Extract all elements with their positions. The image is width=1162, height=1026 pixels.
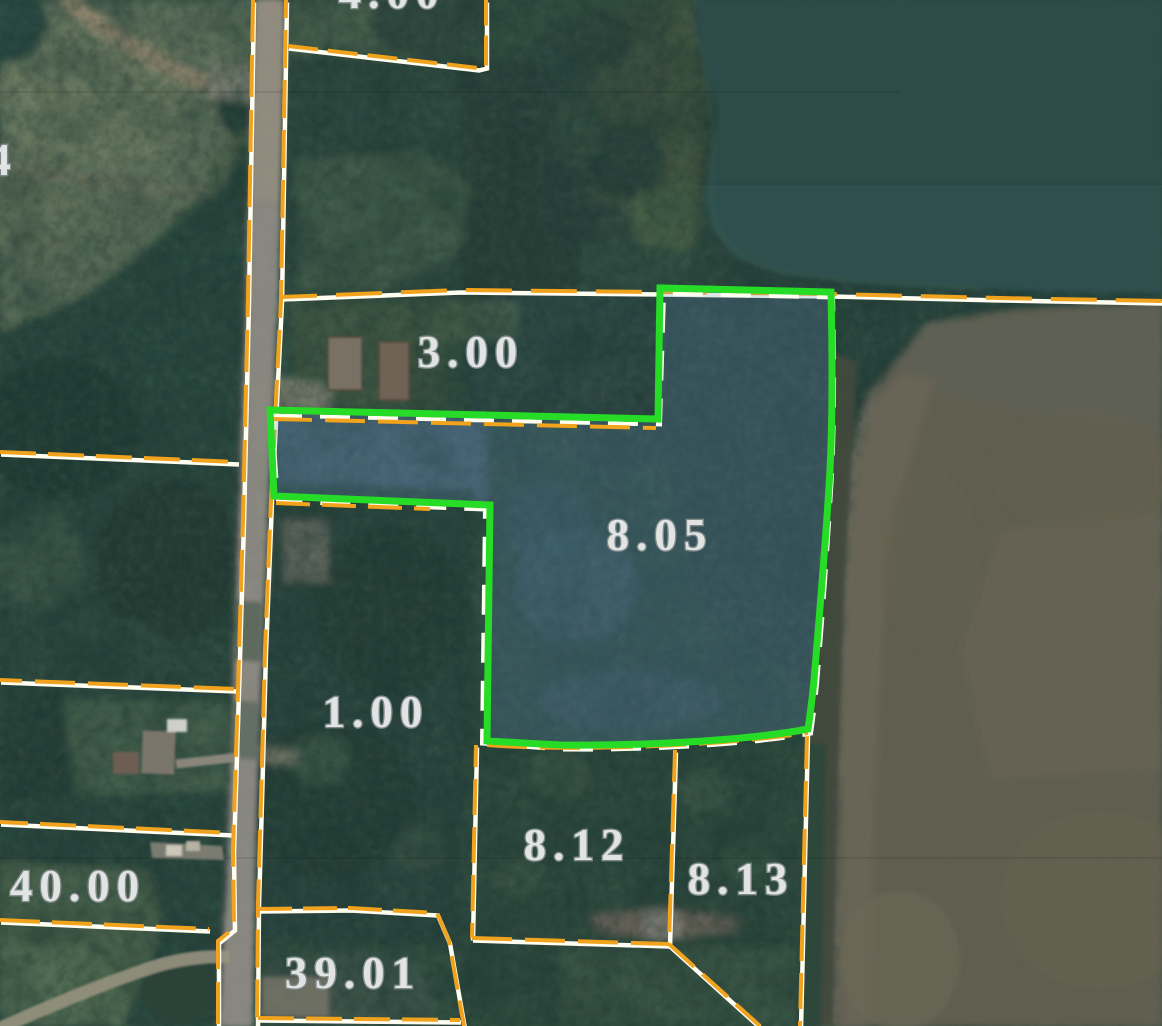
svg-text:8.12: 8.12 — [524, 820, 631, 870]
svg-text:39.01: 39.01 — [285, 948, 421, 998]
svg-text:40.00: 40.00 — [10, 861, 146, 911]
svg-text:4.00: 4.00 — [339, 0, 446, 18]
svg-text:4: 4 — [0, 135, 18, 185]
svg-text:1.00: 1.00 — [323, 687, 430, 737]
svg-text:3.00: 3.00 — [418, 327, 525, 377]
svg-text:8.13: 8.13 — [688, 854, 795, 904]
svg-text:8.05: 8.05 — [607, 510, 714, 560]
